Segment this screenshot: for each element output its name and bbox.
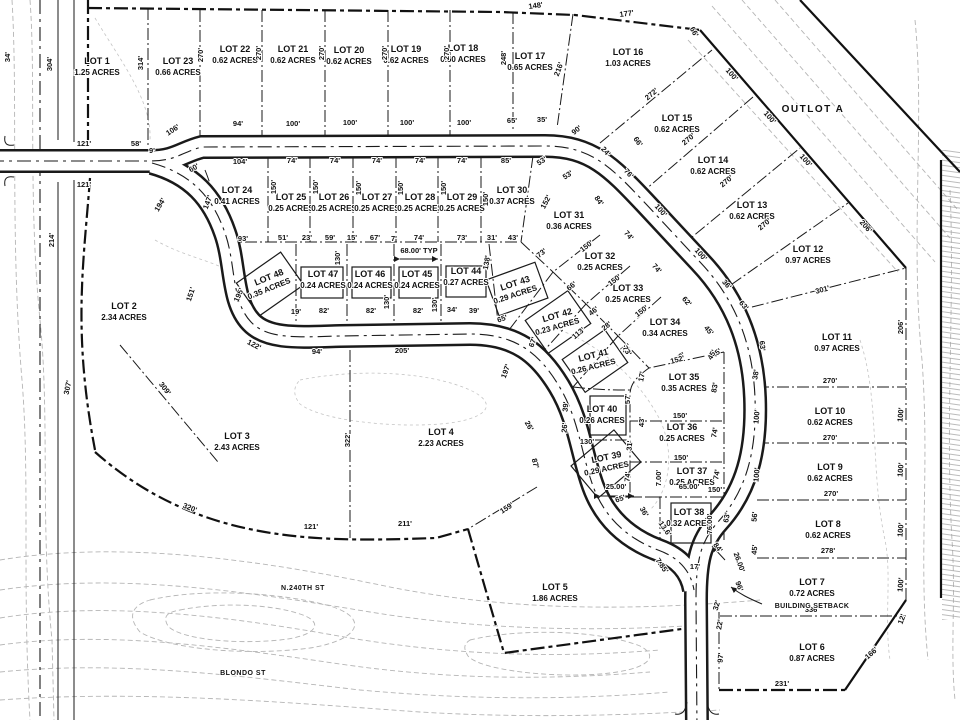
dim-label: 270' xyxy=(254,46,263,61)
lot-acres-label: 0.25 ACRES xyxy=(439,204,485,213)
dim-label: 65' xyxy=(496,313,509,325)
lot-label: LOT 27 xyxy=(362,192,393,202)
dim-label: 51' xyxy=(278,233,288,242)
dim-label: 270' xyxy=(824,489,839,498)
lot-label: LOT 38 xyxy=(674,507,705,517)
dim-label: 19' xyxy=(291,307,301,316)
dim-label: 206' xyxy=(858,218,874,235)
dim-label: 66' xyxy=(688,25,701,38)
lot-label: LOT 46 xyxy=(355,269,386,279)
map-annotation: BUILDING SETBACK xyxy=(775,603,849,610)
road-hatch-strip xyxy=(942,150,960,620)
lot-label: LOT 12 xyxy=(793,244,824,254)
lot-acres-label: 0.25 ACRES xyxy=(577,263,623,272)
lot-label: LOT 31 xyxy=(554,210,585,220)
dim-label: 100' xyxy=(895,407,905,422)
dim-label: 9' xyxy=(149,146,155,155)
dim-label: 150' xyxy=(311,180,320,195)
dim-label: 34' xyxy=(447,305,457,314)
lot-label: LOT 2 xyxy=(111,301,137,311)
dim-label: 68.00' TYP xyxy=(400,246,437,255)
dim-label: 96' xyxy=(733,580,745,593)
dim-label: 35' xyxy=(537,115,547,124)
lot-acres-label: 1.86 ACRES xyxy=(532,594,578,603)
dim-label: 130' xyxy=(430,298,439,313)
lot-label: LOT 36 xyxy=(667,422,698,432)
dim-label: 58' xyxy=(131,139,141,148)
lot-acres-label: 0.36 ACRES xyxy=(546,222,592,231)
lot-label: LOT 47 xyxy=(308,269,339,279)
dim-label: 100' xyxy=(751,467,761,482)
lot-acres-label: 0.25 ACRES xyxy=(354,204,400,213)
dim-label: 57' xyxy=(623,394,632,404)
dim-label: 59' xyxy=(325,233,335,242)
lot-acres-label: 0.66 ACRES xyxy=(155,68,201,77)
dim-label: 76.00' xyxy=(705,514,714,535)
dim-label: 322' xyxy=(343,433,352,448)
dim-label: 43' xyxy=(637,417,646,427)
lot-acres-label: 0.62 ACRES xyxy=(326,57,372,66)
dim-label: 34' xyxy=(3,52,12,62)
dim-label: 152' xyxy=(669,353,685,365)
dim-label: 121' xyxy=(77,139,92,148)
dim-label: 151' xyxy=(184,286,197,303)
dim-label: 26.00' xyxy=(732,551,748,574)
lot-label: LOT 7 xyxy=(799,577,825,587)
dim-label: 73' xyxy=(535,246,549,259)
lot-label: LOT 23 xyxy=(163,56,194,66)
dim-label: 74' xyxy=(622,229,636,243)
dim-label: 90' xyxy=(570,123,584,136)
dim-label: 270' xyxy=(196,48,205,63)
lot-acres-label: 0.62 ACRES xyxy=(212,56,258,65)
dim-label: 100' xyxy=(798,152,814,169)
lot-acres-label: 0.24 ACRES xyxy=(347,281,393,290)
lot-acres-label: 1.03 ACRES xyxy=(605,59,651,68)
dim-label: 270' xyxy=(823,376,838,385)
dim-label: 152' xyxy=(538,193,553,210)
dim-label: 231' xyxy=(775,679,790,688)
dim-label: 177' xyxy=(619,8,635,19)
dim-label: 104' xyxy=(233,157,248,166)
dim-label: 63' xyxy=(758,340,768,351)
lot-acres-label: 2.43 ACRES xyxy=(214,443,260,452)
dim-label: 100' xyxy=(400,118,415,127)
dim-label: 43' xyxy=(508,233,518,242)
lot-acres-label: 0.97 ACRES xyxy=(785,256,831,265)
lot-label: LOT 28 xyxy=(405,192,436,202)
dim-label: 130' xyxy=(333,251,342,266)
dim-label: 73' xyxy=(457,233,467,242)
dim-label: 32' xyxy=(711,599,722,611)
dim-label: 100' xyxy=(895,462,905,477)
dim-label: 39' xyxy=(469,306,479,315)
dim-label: 320' xyxy=(182,501,199,515)
plat-map: LOT 11.25 ACRESLOT 230.66 ACRESLOT 220.6… xyxy=(0,0,960,720)
dim-label: 100' xyxy=(286,119,301,128)
lot-acres-label: 0.97 ACRES xyxy=(814,344,860,353)
lot-label: LOT 13 xyxy=(737,200,768,210)
dim-label: 150' xyxy=(396,181,405,196)
dim-label: 74' xyxy=(415,156,425,165)
dim-label: 74' xyxy=(650,262,664,276)
lot-label: LOT 17 xyxy=(515,51,546,61)
lot-label: LOT 15 xyxy=(662,113,693,123)
dim-label: 66' xyxy=(631,135,644,149)
lot-acres-label: 0.65 ACRES xyxy=(507,63,553,72)
dim-label: 7.00' xyxy=(654,470,663,487)
dim-label: 31' xyxy=(625,440,635,451)
dim-label: 74' xyxy=(414,233,424,242)
dim-label: 150' xyxy=(708,485,723,494)
dim-label: 12' xyxy=(896,613,908,626)
lot-label: LOT 19 xyxy=(391,44,422,54)
dim-label: 45' xyxy=(750,544,760,555)
dim-label: 45' xyxy=(702,324,716,338)
dim-label: 270' xyxy=(442,46,451,61)
lot-label: LOT 1 xyxy=(84,56,110,66)
dim-label: 106' xyxy=(164,122,181,137)
dim-label: 270' xyxy=(380,46,389,61)
dim-label: 56' xyxy=(750,511,760,522)
lot-label: LOT 4 xyxy=(428,427,454,437)
dim-label: 65.00' xyxy=(679,482,700,491)
lot-label: LOT 26 xyxy=(319,192,350,202)
dim-label: 130' xyxy=(382,295,391,310)
dim-label: 66' xyxy=(565,279,579,292)
lot-label: LOT 18 xyxy=(448,43,479,53)
dim-label: 150' xyxy=(354,181,363,196)
lot-acres-label: 0.62 ACRES xyxy=(807,474,853,483)
dim-label: 82' xyxy=(366,306,376,315)
dim-label: 211' xyxy=(398,519,412,528)
dim-label: 205' xyxy=(395,346,410,355)
dim-label: 82' xyxy=(319,306,329,315)
dim-label: 38' xyxy=(750,369,761,381)
dim-label: 150' xyxy=(481,192,490,207)
dim-label: 15' xyxy=(347,233,357,242)
dim-label: 272' xyxy=(643,86,660,102)
lot-acres-label: 0.62 ACRES xyxy=(807,418,853,427)
dim-label: 100' xyxy=(895,577,905,592)
lot-label: LOT 11 xyxy=(822,332,852,342)
dim-label: 74' xyxy=(457,156,467,165)
lot-acres-label: 0.62 ACRES xyxy=(270,56,316,65)
dim-label: 74' xyxy=(287,156,297,165)
lot-acres-label: 0.25 ACRES xyxy=(311,204,357,213)
dim-label: 94' xyxy=(312,347,322,356)
dim-label: 25.00' xyxy=(606,482,627,491)
lot-acres-label: 0.62 ACRES xyxy=(383,56,429,65)
dim-label: 36' xyxy=(638,505,651,518)
lot-label: LOT 14 xyxy=(698,155,729,165)
lot-label: LOT 9 xyxy=(817,462,843,472)
lot-acres-label: 0.25 ACRES xyxy=(268,204,314,213)
lot-acres-label: 0.72 ACRES xyxy=(789,589,835,598)
lot-acres-label: 0.62 ACRES xyxy=(654,125,700,134)
lot-acres-label: 2.23 ACRES xyxy=(418,439,464,448)
lot-acres-label: 0.34 ACRES xyxy=(642,329,688,338)
dim-label: 74' xyxy=(709,427,720,439)
lot-label: LOT 24 xyxy=(222,185,253,195)
dim-label: 74' xyxy=(711,469,722,481)
dim-label: 100' xyxy=(457,118,472,127)
lot-label: LOT 10 xyxy=(815,406,846,416)
dim-label: 84' xyxy=(592,194,605,208)
lot-acres-label: 0.25 ACRES xyxy=(605,295,651,304)
dim-label: 93' xyxy=(238,234,248,243)
lot-label: LOT 35 xyxy=(669,372,700,382)
lot-label: LOT 3 xyxy=(224,431,250,441)
lot-acres-label: 0.24 ACRES xyxy=(300,281,346,290)
plat-sheet: LOT 11.25 ACRESLOT 230.66 ACRESLOT 220.6… xyxy=(0,0,960,720)
lot-label: LOT 40 xyxy=(587,404,618,414)
dim-label: 63' xyxy=(721,512,732,524)
dim-label: 74' xyxy=(372,156,382,165)
dim-label: 83' xyxy=(709,382,720,394)
dim-label: 85' xyxy=(501,156,511,165)
dim-label: 121' xyxy=(304,522,319,531)
lot-label: LOT 6 xyxy=(799,642,825,652)
dim-label: 138' xyxy=(481,255,492,271)
dim-label: 23' xyxy=(302,233,312,242)
lot-acres-label: 2.34 ACRES xyxy=(101,313,147,322)
dim-label: 216' xyxy=(552,61,565,78)
dim-label: 197' xyxy=(499,363,512,380)
map-annotation: N.240TH ST xyxy=(281,585,325,592)
lot-acres-label: 0.87 ACRES xyxy=(789,654,835,663)
dim-label: 214' xyxy=(47,233,56,248)
lot-acres-label: 1.25 ACRES xyxy=(74,68,120,77)
lot-acres-label: 0.26 ACRES xyxy=(579,416,625,425)
lot-acres-label: 0.24 ACRES xyxy=(394,281,440,290)
dim-label: 150' xyxy=(673,411,688,420)
dim-label: 26' xyxy=(560,422,570,433)
dim-label: 97' xyxy=(716,652,726,663)
dim-label: 65' xyxy=(614,493,627,505)
lot-acres-label: 0.25 ACRES xyxy=(397,204,443,213)
lot-label: LOT 32 xyxy=(585,251,616,261)
lot-acres-label: 0.35 ACRES xyxy=(661,384,707,393)
dim-label: 130' xyxy=(580,437,595,446)
dim-label: 307' xyxy=(62,379,74,395)
dim-label: 17' xyxy=(690,562,700,571)
dim-label: 100' xyxy=(343,118,358,127)
dim-label: 150' xyxy=(269,180,278,195)
dim-label: 74' xyxy=(623,471,633,482)
lot-acres-label: 0.27 ACRES xyxy=(443,278,489,287)
lot-label: LOT 20 xyxy=(334,45,365,55)
lot-label: LOT 33 xyxy=(613,283,644,293)
dim-label: 314' xyxy=(136,56,145,71)
lot-label: LOT 16 xyxy=(613,47,644,57)
lot-label: LOT 44 xyxy=(451,266,482,276)
lot-label: LOT 37 xyxy=(677,466,708,476)
map-annotation: BLONDO ST xyxy=(220,670,266,677)
lot-label: LOT 30 xyxy=(497,185,528,195)
dim-label: 7' xyxy=(391,234,397,243)
dim-label: 26' xyxy=(523,419,536,432)
dim-label: 270' xyxy=(317,46,326,61)
dim-label: 121' xyxy=(77,180,92,189)
dim-label: 65' xyxy=(507,116,517,125)
lot-label: LOT 5 xyxy=(542,582,568,592)
dim-label: 248' xyxy=(499,51,508,66)
map-annotation: OUTLOT A xyxy=(782,104,845,115)
dim-label: 166' xyxy=(863,645,880,661)
dim-label: 31' xyxy=(487,233,497,242)
lot-acres-label: 0.25 ACRES xyxy=(659,434,705,443)
lot-acres-label: 0.37 ACRES xyxy=(489,197,535,206)
dim-label: 206' xyxy=(896,320,905,335)
lot-label: LOT 45 xyxy=(402,269,433,279)
dim-label: 159' xyxy=(498,500,515,515)
dim-label: 150' xyxy=(439,181,448,196)
dim-label: 309' xyxy=(157,380,173,397)
lot-label: LOT 25 xyxy=(276,192,307,202)
dim-label: 100' xyxy=(895,522,905,537)
lot-label: LOT 29 xyxy=(447,192,478,202)
dim-label: 270' xyxy=(823,433,838,442)
lot-label: LOT 8 xyxy=(815,519,841,529)
dim-label: 100' xyxy=(751,409,761,424)
lot-acres-label: 0.41 ACRES xyxy=(214,197,260,206)
lot-label: LOT 21 xyxy=(278,44,309,54)
dim-label: 39' xyxy=(561,401,571,412)
dim-label: 53' xyxy=(561,168,575,181)
dim-label: 74' xyxy=(330,156,340,165)
dim-label: 304' xyxy=(45,57,54,72)
dim-label: 100' xyxy=(724,66,740,83)
dim-label: 148' xyxy=(528,0,544,11)
dim-label: 28' xyxy=(600,319,614,332)
lot-label: LOT 34 xyxy=(650,317,681,327)
dim-label: 150' xyxy=(674,453,689,462)
dim-label: 278' xyxy=(821,546,836,555)
dim-label: 67' xyxy=(370,233,380,242)
dim-label: 22' xyxy=(714,619,725,631)
dim-label: 62' xyxy=(680,295,694,309)
dim-label: 150' xyxy=(633,303,650,319)
dim-label: 301' xyxy=(814,283,830,295)
dim-label: 94' xyxy=(233,119,243,128)
dim-label: 17' xyxy=(636,371,647,383)
dim-label: 82' xyxy=(413,306,423,315)
dim-label: 194' xyxy=(152,196,167,213)
lot-acres-label: 0.62 ACRES xyxy=(805,531,851,540)
lot-label: LOT 22 xyxy=(220,44,251,54)
dim-label: 100' xyxy=(762,109,778,126)
dim-label: 87' xyxy=(530,457,541,469)
